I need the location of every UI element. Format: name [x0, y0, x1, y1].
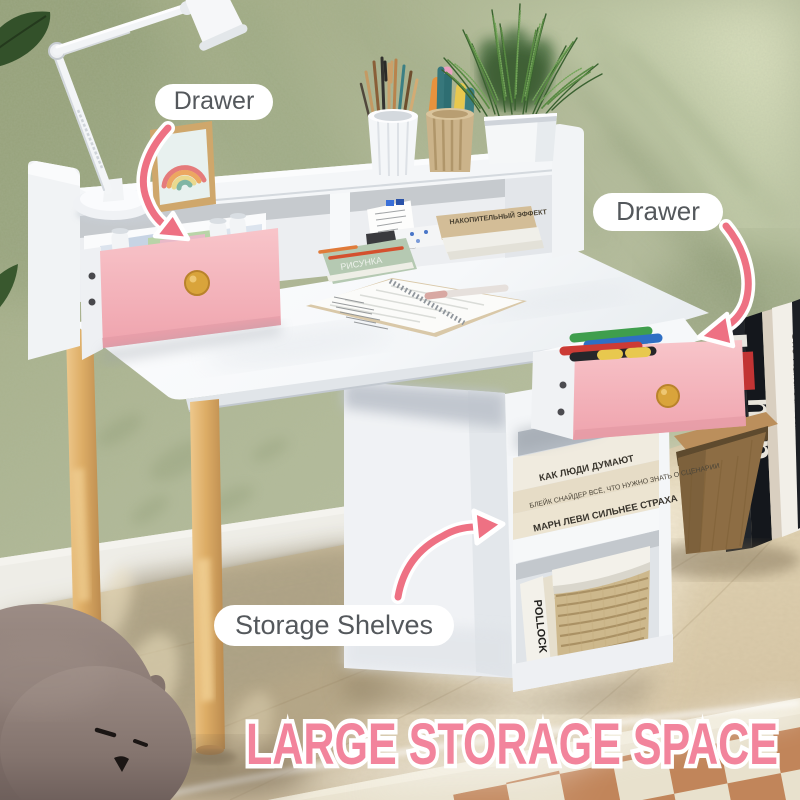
- svg-text:LARGE STORAGE SPACE: LARGE STORAGE SPACE: [246, 712, 778, 777]
- svg-text:Storage Shelves: Storage Shelves: [235, 610, 433, 640]
- svg-text:Drawer: Drawer: [616, 196, 700, 226]
- svg-text:Drawer: Drawer: [174, 87, 255, 115]
